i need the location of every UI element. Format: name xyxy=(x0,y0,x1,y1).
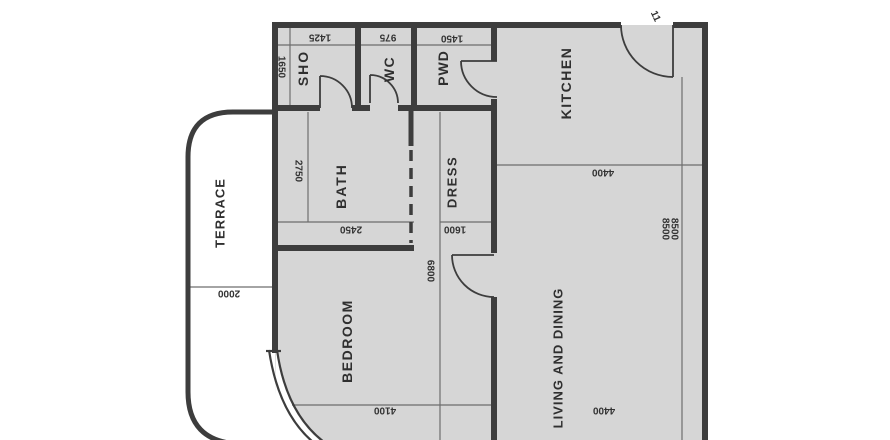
room-label-bath: BATH xyxy=(333,163,349,209)
terrace-outline xyxy=(188,112,272,440)
dim-kitchen-width: 4400 xyxy=(591,167,614,178)
dim-dress-width: 1600 xyxy=(443,224,466,235)
dim-pwd-width: 1450 xyxy=(440,33,463,44)
floor-plan-canvas: SHO WC PWD KITCHEN BATH DRESS TERRACE BE… xyxy=(0,0,890,440)
room-label-bedroom: BEDROOM xyxy=(339,299,355,383)
room-label-kitchen: KITCHEN xyxy=(558,47,574,120)
dim-living-width: 4400 xyxy=(592,405,615,416)
room-label-living: LIVING AND DINING xyxy=(551,288,566,429)
room-label-pwd: PWD xyxy=(435,50,451,86)
room-label-sho: SHO xyxy=(295,50,311,86)
dim-sho-width: 1425 xyxy=(308,32,331,43)
dim-living-length-b: 8500 xyxy=(669,218,680,241)
dim-wc-width: 975 xyxy=(379,32,396,43)
room-label-dress: DRESS xyxy=(445,156,460,208)
dim-bedroom-width: 4100 xyxy=(373,405,396,416)
floor-plan-drawing: SHO WC PWD KITCHEN BATH DRESS TERRACE BE… xyxy=(0,0,890,440)
dim-terrace-width: 2000 xyxy=(217,288,240,299)
dim-bath-depth: 2750 xyxy=(293,160,304,183)
dim-hall-depth: 6800 xyxy=(425,260,436,283)
corner-note-cutoff: 11 xyxy=(648,9,663,24)
room-label-wc: WC xyxy=(381,56,397,82)
room-label-terrace: TERRACE xyxy=(213,178,228,248)
dim-bath-width: 2450 xyxy=(339,224,362,235)
dim-sho-depth: 1650 xyxy=(276,56,287,79)
